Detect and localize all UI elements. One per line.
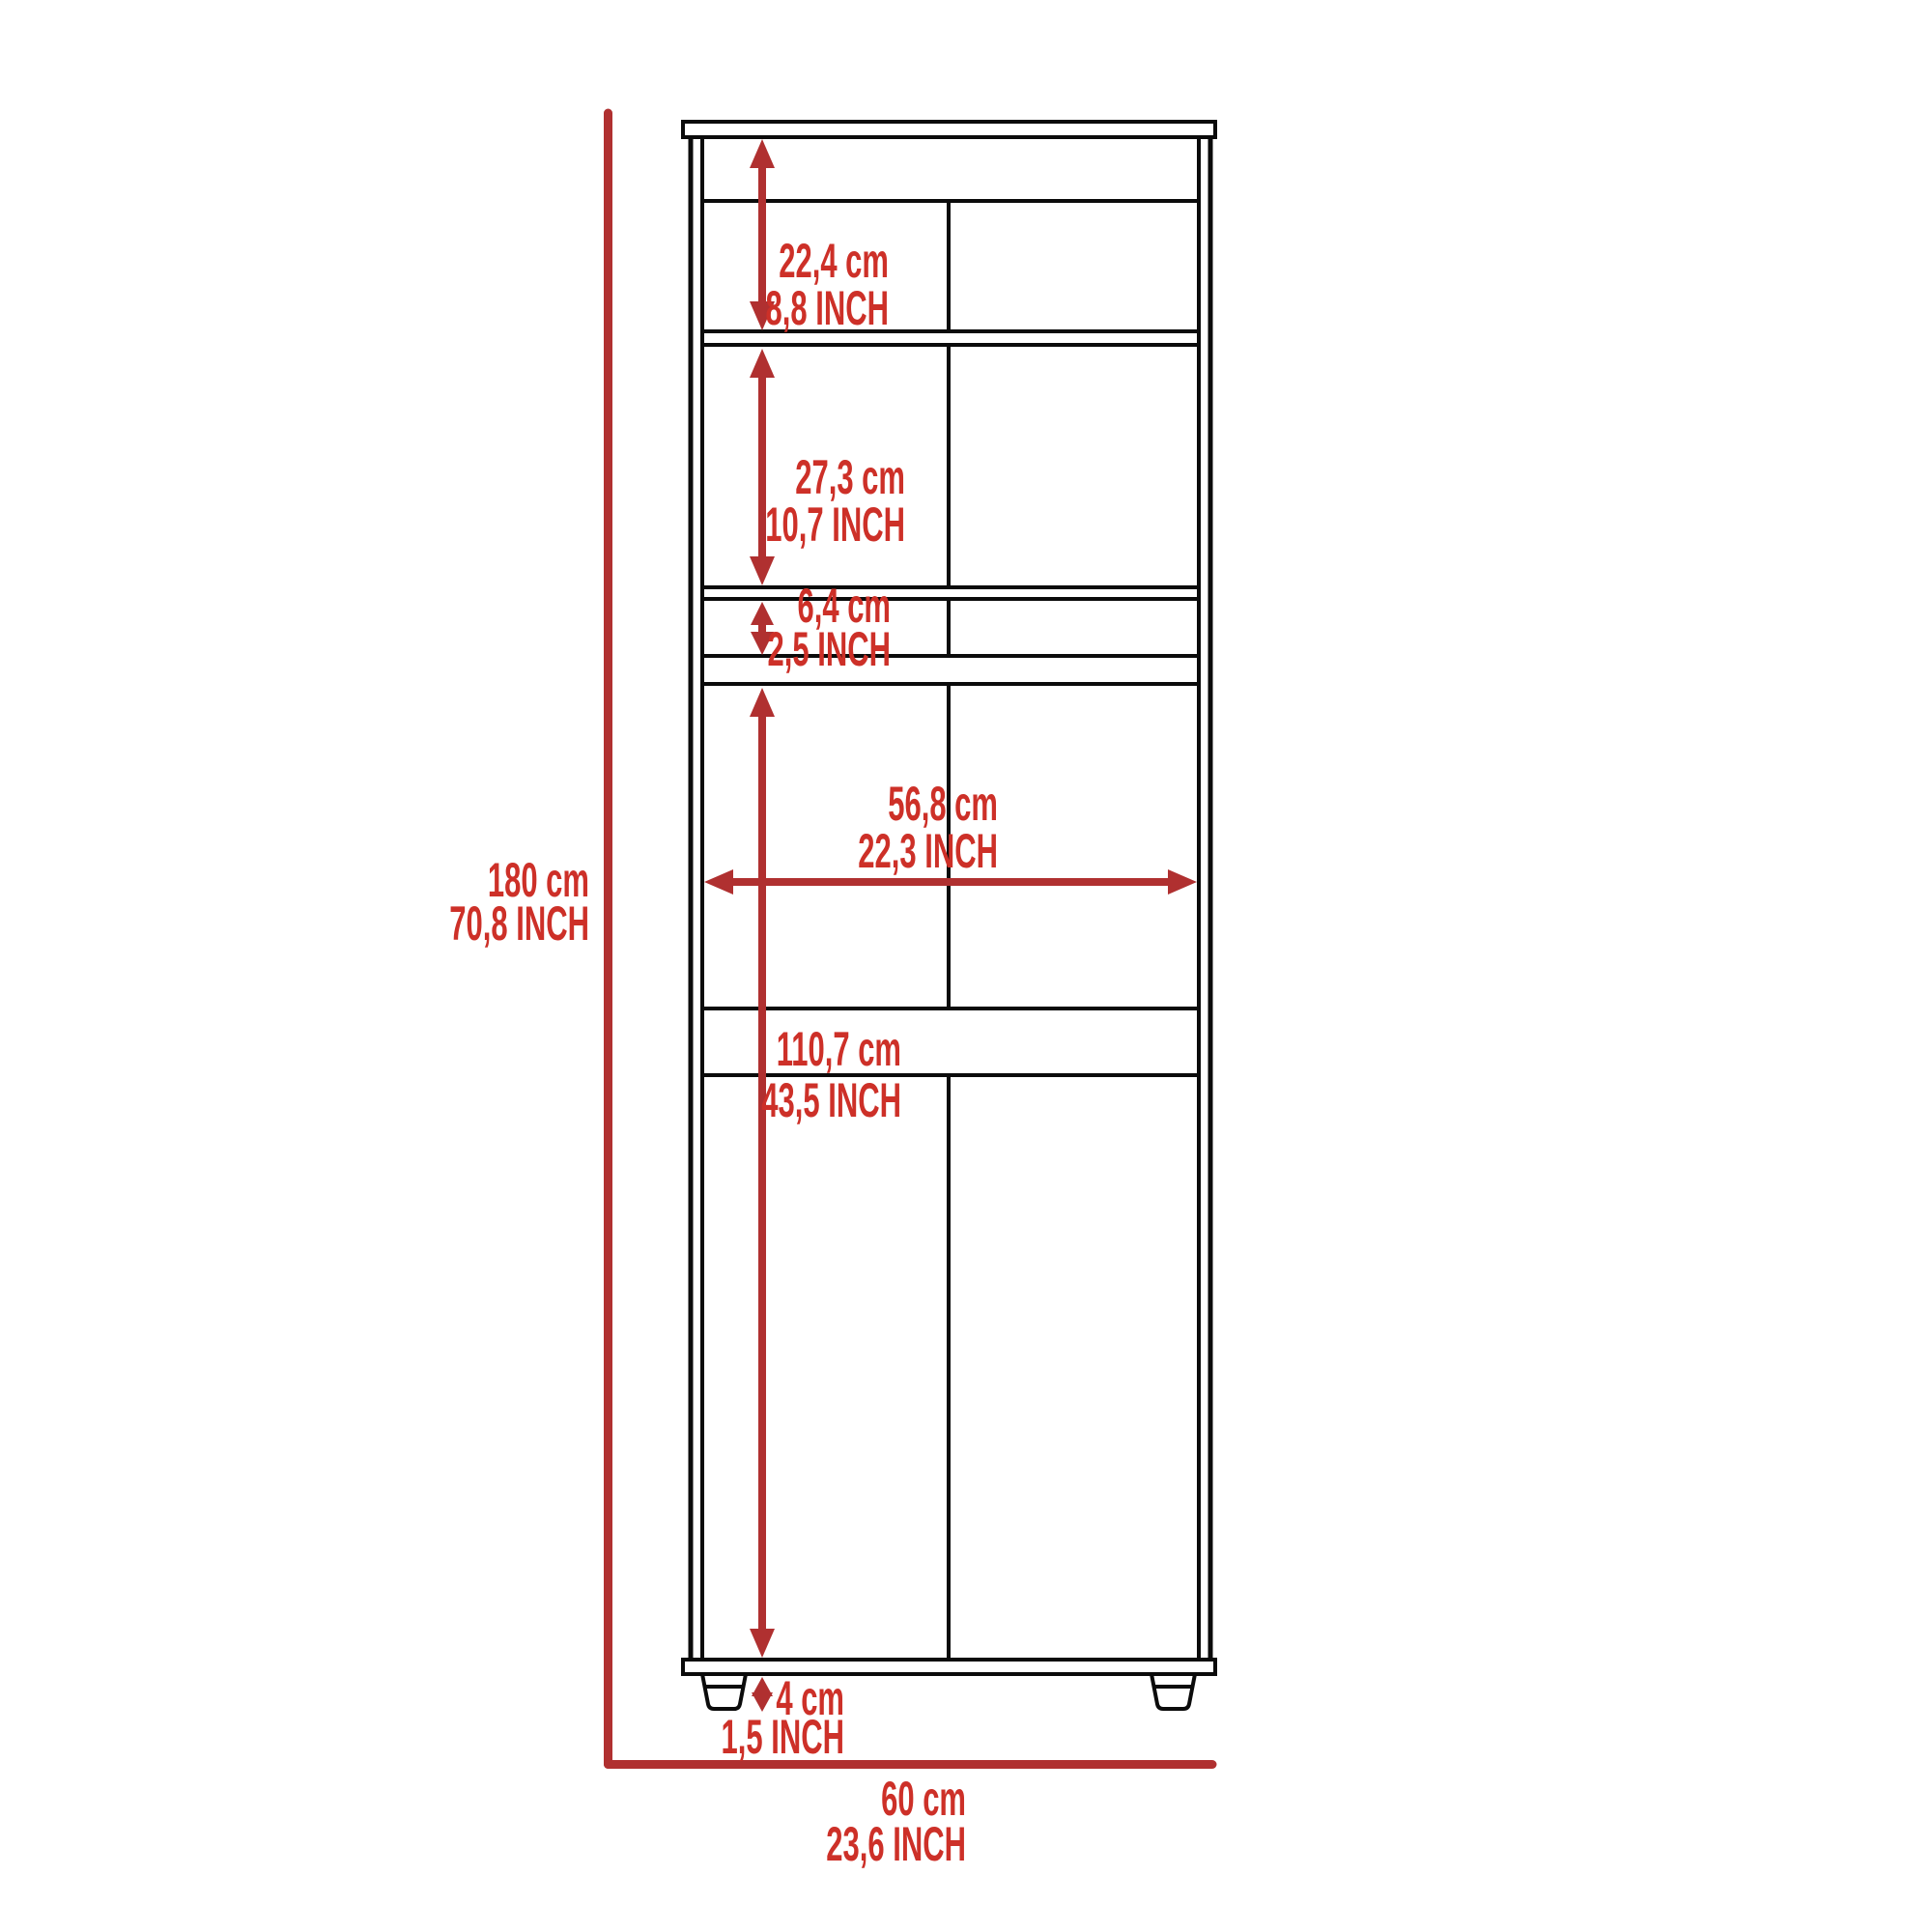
dim-inch: 1,5 INCH [569, 1714, 844, 1761]
dim-label-interior-width: 56,8 cm 22,3 INCH [554, 781, 998, 875]
dim-inch: 70,8 INCH [314, 900, 589, 948]
dim-cm: 60 cm [691, 1776, 966, 1823]
cabinet-line-drawing [0, 0, 1932, 1932]
dim-cm: 56,8 cm [723, 781, 998, 828]
dim-inch: 2,5 INCH [615, 626, 891, 673]
dim-label-drawer-section: 6,4 cm 2,5 INCH [446, 582, 891, 673]
overall-dimension-lines [609, 113, 1213, 1765]
foot-right [1151, 1674, 1195, 1709]
dim-label-feet-height: 4 cm 1,5 INCH [400, 1675, 844, 1761]
dim-label-upper-cabinet-section: 27,3 cm 10,7 INCH [461, 454, 905, 549]
cabinet-base-panel [683, 1660, 1215, 1674]
dim-inch: 23,6 INCH [691, 1821, 966, 1868]
dim-cm: 110,7 cm [626, 1026, 901, 1073]
dim-inch: 8,8 INCH [613, 285, 889, 332]
cabinet-top-panel [683, 122, 1215, 137]
dim-inch: 22,3 INCH [723, 828, 998, 875]
dim-inch: 43,5 INCH [626, 1077, 901, 1124]
dim-label-top-shelf-section: 22,4 cm 8,8 INCH [444, 238, 889, 332]
dimension-diagram: 22,4 cm 8,8 INCH 27,3 cm 10,7 INCH 6,4 c… [0, 0, 1932, 1932]
dim-label-overall-height: 180 cm 70,8 INCH [145, 857, 589, 948]
dim-label-lower-cabinet-section: 110,7 cm 43,5 INCH [457, 1026, 901, 1124]
dim-cm: 22,4 cm [613, 238, 889, 285]
dim-inch: 10,7 INCH [630, 501, 905, 549]
dim-label-overall-width: 60 cm 23,6 INCH [522, 1776, 966, 1868]
dim-cm: 27,3 cm [630, 454, 905, 501]
